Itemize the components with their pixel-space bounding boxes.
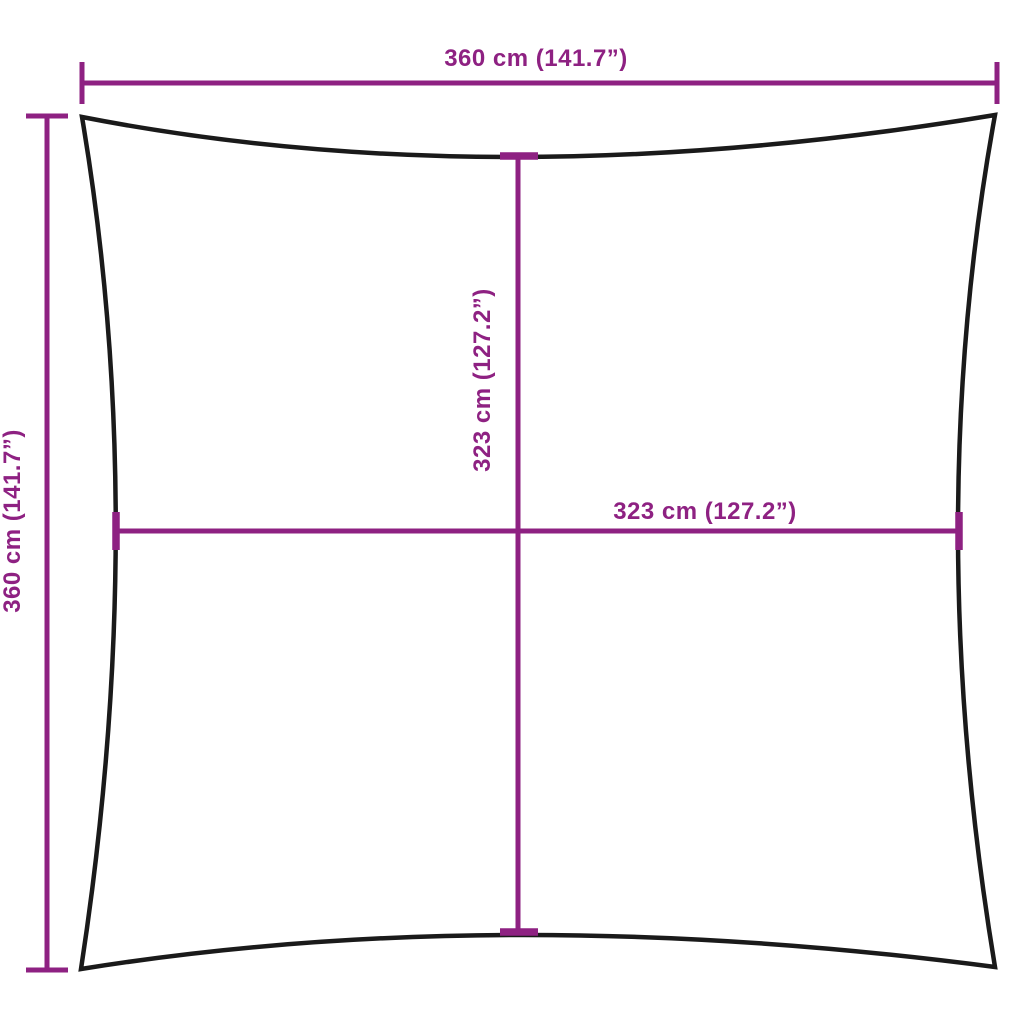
dimension-diagram: 360 cm (141.7”) 360 cm (141.7”) 323 cm (… (0, 0, 1024, 1024)
top-width-dimension: 360 cm (141.7”) (82, 45, 997, 104)
left-height-dimension: 360 cm (141.7”) (0, 116, 68, 970)
inner-height-dimension: 323 cm (127.2”) (469, 155, 538, 933)
inner-width-dimension-label: 323 cm (127.2”) (613, 498, 797, 525)
inner-height-dimension-label: 323 cm (127.2”) (469, 288, 496, 472)
diagram-svg: 360 cm (141.7”) 360 cm (141.7”) 323 cm (… (0, 0, 1024, 1024)
sail-outline (81, 115, 995, 969)
inner-width-dimension: 323 cm (127.2”) (115, 498, 959, 550)
left-height-dimension-label: 360 cm (141.7”) (0, 429, 26, 613)
top-width-dimension-label: 360 cm (141.7”) (444, 45, 628, 72)
